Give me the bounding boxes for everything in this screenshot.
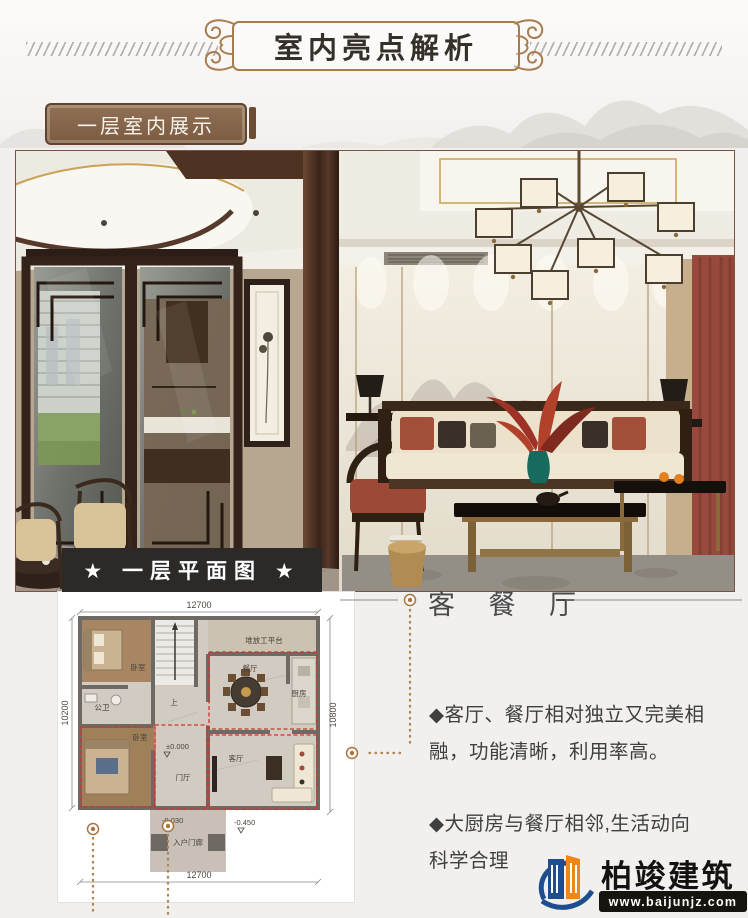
- logo-name[interactable]: 柏竣建筑: [601, 851, 735, 896]
- downlight-icon: [101, 220, 107, 226]
- room-dining: 餐厅: [243, 664, 258, 673]
- section-tag-label: 一层室内展示: [77, 110, 215, 139]
- room-living: 客厅: [229, 753, 244, 763]
- logo-website: www.baijunjz.com: [609, 895, 738, 909]
- room-porch: 入户门廊: [173, 837, 203, 847]
- room-foyer: 门厅: [176, 773, 191, 782]
- plan-banner-label: ★ 一层平面图 ★: [83, 555, 300, 585]
- logo-buildings-icon: [534, 849, 596, 913]
- bed-bottom: [85, 740, 129, 794]
- section-tag[interactable]: 一层室内展示: [45, 103, 247, 145]
- page-title: 室内亮点解析: [274, 25, 478, 67]
- downlight-icon: [253, 210, 259, 216]
- floor-plan-panel: 12700 12700 10200 10800 卧室 公卫 卧室 上 门厅 客厅…: [58, 592, 354, 902]
- level-outside: -0.450: [234, 818, 255, 827]
- room-bath: 公卫: [95, 703, 110, 712]
- dim-right: 10800: [328, 702, 338, 727]
- room-bedroom-bottom: 卧室: [133, 732, 148, 742]
- logo-website-banner[interactable]: www.baijunjz.com: [599, 891, 747, 912]
- room-stairs-up: 上: [170, 698, 178, 707]
- room-platform: 堆放工平台: [245, 635, 283, 645]
- page: { "header": { "title": "室内亮点解析" }, "tag"…: [0, 0, 748, 918]
- room-kitchen: 厨房: [292, 688, 307, 698]
- wood-column: [303, 151, 339, 591]
- hatch-right: [530, 42, 722, 56]
- hatch-left: [26, 42, 218, 56]
- interior-photo-scene: [16, 151, 734, 591]
- callout-bullet-1: ◆客厅、餐厅相对独立又完美相融，功能清晰，利用率高。: [429, 697, 705, 771]
- callout-heading: 客 餐 厅: [428, 583, 589, 622]
- room-bedroom-top: 卧室: [131, 662, 146, 672]
- level-porch: -0.030: [162, 816, 183, 825]
- scroll-ornament-left-icon: [196, 14, 236, 76]
- section-tag-endcap: [249, 107, 256, 139]
- gold-drum-stool: [388, 535, 426, 587]
- dim-left: 10200: [60, 700, 70, 725]
- plan-banner: ★ 一层平面图 ★: [62, 548, 322, 592]
- page-title-frame: 室内亮点解析: [232, 21, 520, 71]
- bed-top: [84, 630, 122, 670]
- level-zero: ±0.000: [166, 742, 189, 751]
- floor-plan-drawing: 12700 12700 10200 10800 卧室 公卫 卧室 上 门厅 客厅…: [58, 592, 354, 902]
- dim-top: 12700: [186, 600, 211, 610]
- interior-photo: [15, 150, 735, 592]
- dim-bottom: 12700: [186, 870, 211, 880]
- wall-art-scroll: [244, 279, 290, 447]
